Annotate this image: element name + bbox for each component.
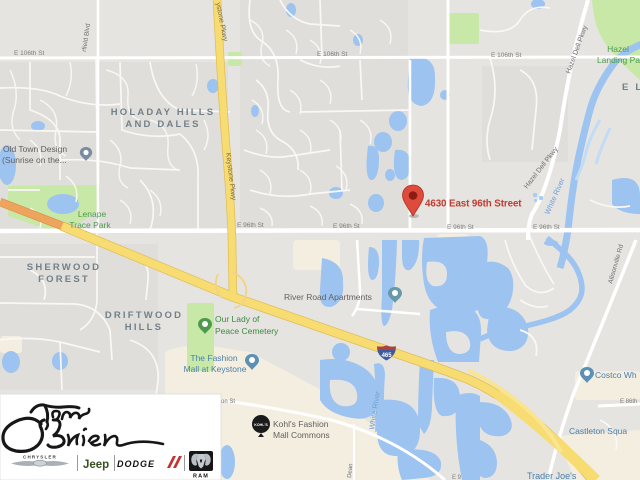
svg-text:The Fashion: The Fashion: [190, 353, 238, 363]
svg-text:Trace Park: Trace Park: [69, 220, 111, 230]
svg-text:RAM: RAM: [193, 474, 209, 480]
svg-text:Castleton Squa: Castleton Squa: [569, 426, 627, 436]
svg-text:Lenape: Lenape: [78, 209, 107, 219]
svg-text:DRIFTWOOD: DRIFTWOOD: [105, 310, 183, 321]
svg-text:DODGE: DODGE: [117, 459, 155, 469]
svg-text:HOLADAY HILLS: HOLADAY HILLS: [111, 107, 216, 118]
svg-text:AND DALES: AND DALES: [125, 119, 200, 130]
svg-text:E 96th St: E 96th St: [237, 222, 264, 229]
svg-text:KOHL'S: KOHL'S: [254, 423, 268, 427]
svg-text:Hazel: Hazel: [607, 44, 629, 54]
svg-text:E 86th: E 86th: [620, 399, 637, 405]
svg-text:Landing Park: Landing Park: [597, 55, 640, 65]
svg-text:Peace Cemetery: Peace Cemetery: [215, 326, 279, 336]
svg-text:SHERWOOD: SHERWOOD: [27, 262, 101, 273]
svg-text:E 106th St: E 106th St: [491, 52, 522, 59]
svg-text:E 96th St: E 96th St: [447, 224, 474, 231]
svg-text:Old Town Design: Old Town Design: [3, 144, 67, 154]
svg-text:CHRYSLER: CHRYSLER: [23, 455, 57, 460]
svg-text:Mall at Keystone: Mall at Keystone: [184, 364, 247, 374]
svg-text:E L L: E L L: [622, 82, 640, 93]
svg-text:Trader Joe's: Trader Joe's: [527, 471, 577, 480]
svg-text:(Sunrise on the...: (Sunrise on the...: [2, 155, 67, 165]
svg-text:Costco Wh: Costco Wh: [595, 370, 637, 380]
svg-text:Our Lady of: Our Lady of: [215, 314, 260, 324]
svg-text:4630 East 96th Street: 4630 East 96th Street: [425, 199, 522, 210]
svg-text:E 106th St: E 106th St: [14, 50, 45, 57]
svg-text:Kohl's Fashion: Kohl's Fashion: [273, 419, 329, 429]
svg-text:Mall Commons: Mall Commons: [273, 430, 330, 440]
svg-text:River Road Apartments: River Road Apartments: [284, 292, 372, 302]
svg-text:E 96th St: E 96th St: [533, 224, 560, 231]
svg-text:Jeep: Jeep: [83, 459, 109, 471]
svg-text:on St: on St: [221, 399, 235, 405]
svg-text:E 106th St: E 106th St: [317, 51, 348, 58]
svg-text:E 9: E 9: [452, 475, 462, 480]
svg-text:465: 465: [382, 353, 393, 359]
svg-text:FOREST: FOREST: [38, 274, 90, 285]
svg-text:E 96th St: E 96th St: [333, 223, 360, 230]
svg-text:HILLS: HILLS: [125, 322, 163, 333]
